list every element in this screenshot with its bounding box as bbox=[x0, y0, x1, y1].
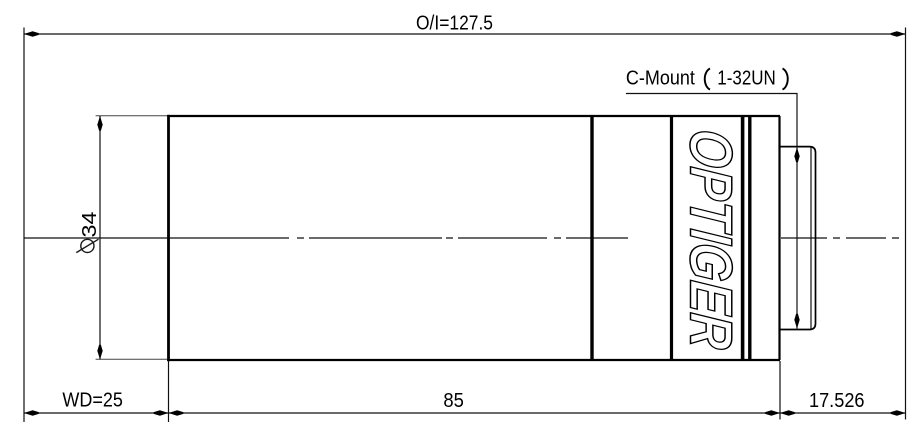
svg-text:1-32UN: 1-32UN bbox=[717, 67, 776, 90]
svg-text:O/I=127.5: O/I=127.5 bbox=[416, 11, 493, 34]
svg-text:17.526: 17.526 bbox=[809, 389, 865, 412]
svg-text:85: 85 bbox=[443, 389, 464, 412]
svg-text:C-Mount: C-Mount bbox=[626, 67, 695, 90]
svg-text:OPTIGER: OPTIGER bbox=[678, 127, 745, 352]
svg-text:34: 34 bbox=[78, 212, 101, 238]
svg-text:WD=25: WD=25 bbox=[62, 388, 123, 411]
